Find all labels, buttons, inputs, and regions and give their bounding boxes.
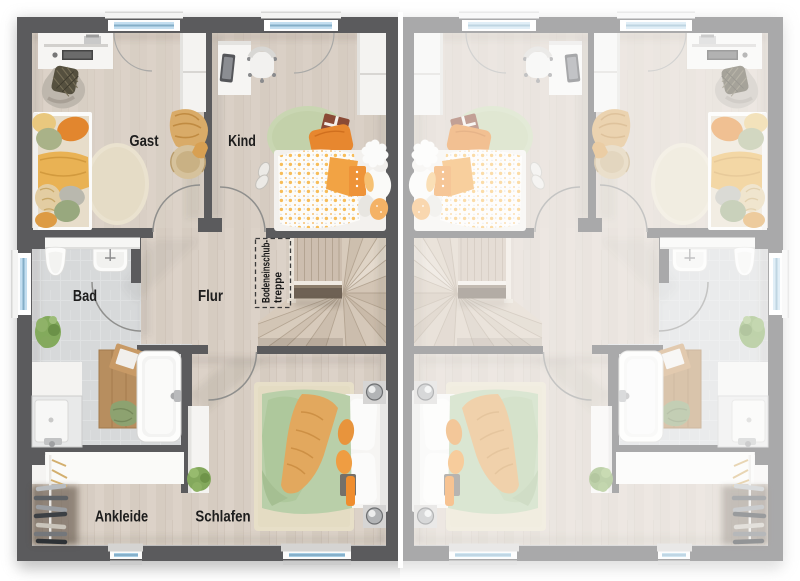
svg-text:treppe: treppe	[273, 272, 284, 303]
svg-text:Ankleide: Ankleide	[95, 508, 148, 526]
svg-text:Bad: Bad	[73, 288, 97, 306]
svg-text:Flur: Flur	[198, 288, 223, 305]
svg-text:Bodeneinschub-: Bodeneinschub-	[259, 240, 271, 303]
svg-text:Gast: Gast	[129, 133, 158, 150]
svg-text:Schlafen: Schlafen	[195, 508, 250, 525]
svg-text:Kind: Kind	[228, 133, 256, 151]
